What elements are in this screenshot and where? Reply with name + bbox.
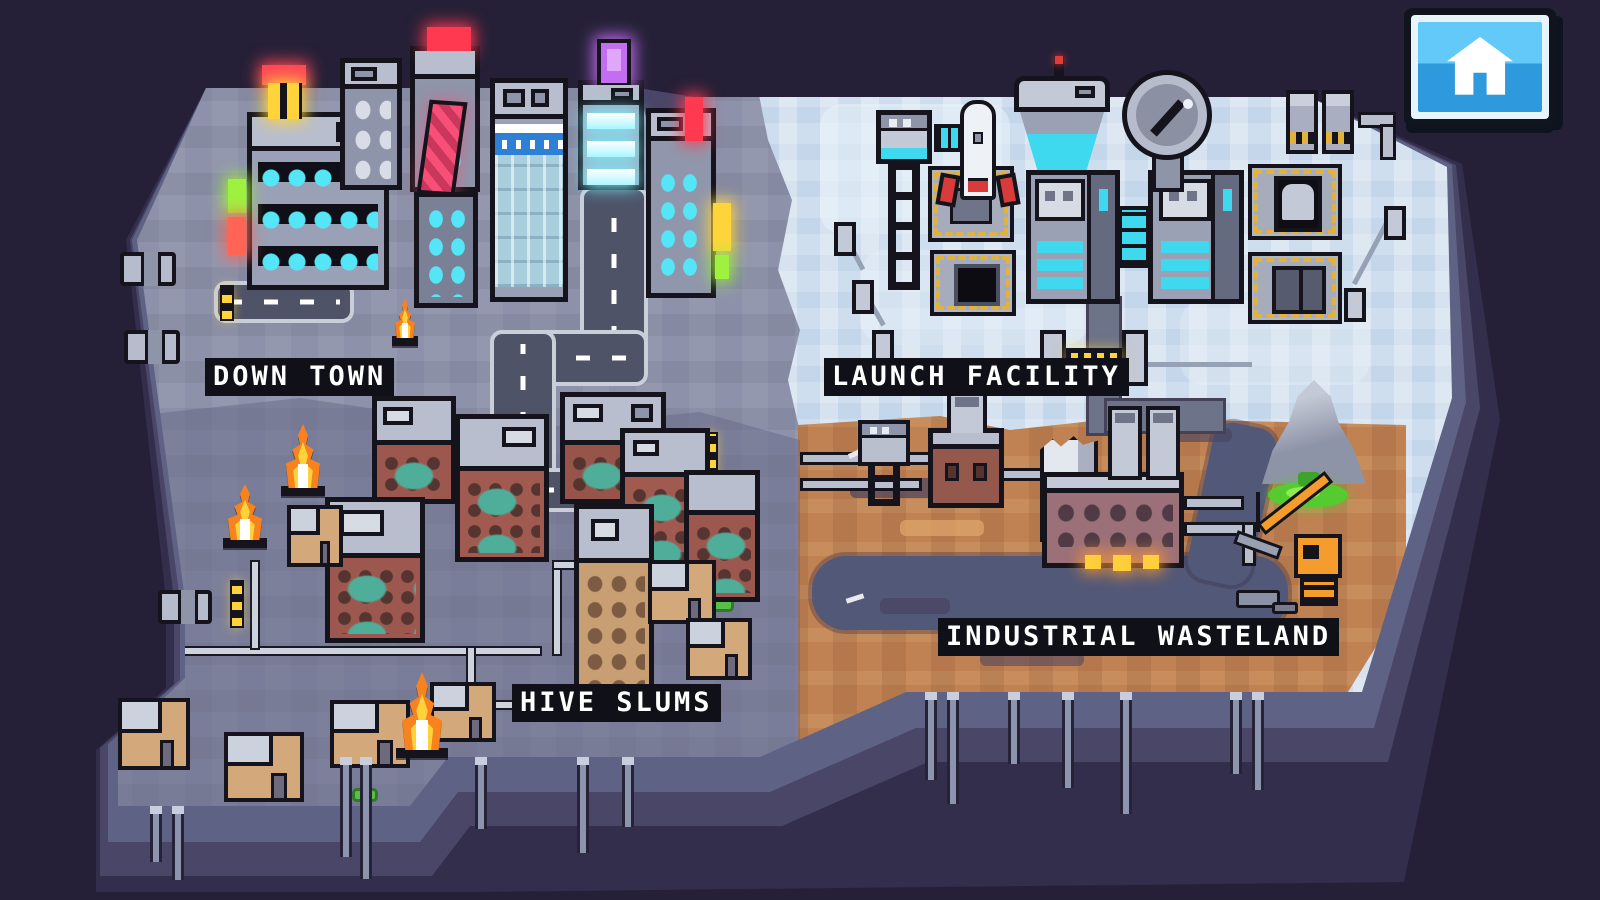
- cliff-pipe: [475, 757, 487, 829]
- cliff-pipe: [622, 757, 634, 827]
- red-neon-sign: [685, 97, 703, 141]
- hazard-barrier: [220, 285, 234, 321]
- crane: [1230, 470, 1360, 610]
- smelting-factory: [1042, 472, 1184, 568]
- blue-sign-band: [495, 133, 563, 155]
- dome: [1282, 184, 1314, 220]
- edge-pipe-clamp: [124, 330, 180, 364]
- shanty-hut: [648, 560, 716, 624]
- tower-white-strip: [495, 124, 563, 133]
- home-button[interactable]: [1404, 8, 1556, 126]
- crane-cab: [1294, 534, 1342, 578]
- fallen-beam: [1233, 530, 1283, 560]
- pink-banner: [416, 100, 467, 197]
- home-button-face: [1418, 22, 1542, 112]
- cyan-window-strip: [1037, 241, 1083, 253]
- furnace-glow: [1085, 555, 1101, 569]
- slum-pipe: [150, 646, 542, 656]
- crane-boom: [1257, 471, 1333, 535]
- label-launch-facility[interactable]: LAUNCH FACILITY: [824, 358, 1129, 396]
- open-missile-silo: [930, 250, 1016, 316]
- radar-dish: [1122, 70, 1214, 192]
- smokestack: [1146, 406, 1180, 480]
- skyscraper-3: [410, 46, 480, 192]
- rocket-fin-left: [935, 173, 960, 208]
- label-down-town[interactable]: DOWN TOWN: [205, 358, 394, 396]
- rocket: [936, 100, 1020, 212]
- neon-tower: [578, 80, 644, 190]
- cyan-band: [587, 169, 635, 185]
- cyan-band: [587, 141, 635, 157]
- label-hive-slums[interactable]: HIVE SLUMS: [512, 684, 721, 722]
- green-neon-sign: [228, 179, 246, 213]
- slum-pipe: [250, 560, 260, 650]
- machinery-pad-dome: [1248, 164, 1342, 240]
- boiler-house: [928, 428, 1004, 508]
- shanty-hut: [287, 505, 343, 567]
- cliff-pipe: [1120, 692, 1132, 814]
- red-neon-sign: [228, 217, 246, 255]
- green-neon-sign: [715, 255, 729, 279]
- cliff-pipe: [172, 806, 184, 880]
- glass-tower: [490, 78, 568, 302]
- cliff-pipe: [360, 757, 372, 879]
- factory-windows: [1053, 499, 1173, 547]
- world-map: DOWN TOWN LAUNCH FACILITY HIVE SLUMS IND…: [0, 0, 1600, 900]
- fence-line: [1148, 362, 1252, 367]
- tower-legs: [888, 164, 920, 290]
- skyscraper-2: [340, 58, 402, 190]
- slum-pipe: [552, 560, 562, 656]
- dirt-patch: [900, 520, 984, 536]
- furnace-glow: [1113, 555, 1131, 571]
- cliff-pipe: [1062, 692, 1074, 788]
- edge-pipe-clamp: [120, 252, 176, 286]
- cyan-window-strip: [1037, 259, 1083, 271]
- fire: [394, 298, 416, 338]
- cyan-window-strip: [1161, 277, 1209, 289]
- window-grid: [425, 205, 467, 297]
- brick-windows: [464, 479, 540, 553]
- brick-windows: [334, 566, 416, 634]
- label-industrial-wasteland[interactable]: INDUSTRIAL WASTELAND: [938, 618, 1339, 656]
- cliff-pipe: [947, 692, 959, 804]
- windows: [583, 571, 645, 691]
- cyan-window-strip: [1161, 241, 1209, 253]
- edge-pipe-clamp: [158, 590, 212, 624]
- edge-pipe: [1380, 124, 1396, 160]
- cliff-pipe: [577, 757, 589, 853]
- fence-post: [1344, 288, 1366, 322]
- vent-stack: [1322, 90, 1354, 154]
- shanty-hut: [118, 698, 190, 770]
- red-billboard: [427, 27, 471, 53]
- fire: [284, 424, 322, 488]
- vent-stack: [1286, 90, 1318, 154]
- rocket-body: [960, 100, 996, 200]
- shanty-hut: [224, 732, 304, 802]
- skyscraper-5: [646, 108, 716, 298]
- fence-post: [834, 222, 856, 256]
- research-lab-1: [1026, 170, 1120, 304]
- facility-water-tower: [876, 110, 932, 290]
- window-grid: [351, 95, 391, 179]
- cliff-pipe: [1008, 692, 1020, 764]
- cyan-window-strip: [1037, 277, 1083, 289]
- glass-facade: [495, 155, 563, 287]
- rubble: [1272, 602, 1298, 614]
- brick-windows: [381, 453, 447, 495]
- cliff-pipe: [1230, 692, 1242, 774]
- furnace-glow: [1143, 555, 1159, 569]
- crane-base: [1300, 578, 1338, 606]
- cyan-band: [587, 113, 635, 129]
- cliff-pipe: [925, 692, 937, 780]
- yellow-neon-stacks: [268, 83, 302, 119]
- purple-neon-sign: [597, 39, 631, 87]
- cliff-pipe: [340, 757, 352, 857]
- yellow-neon-sign: [713, 203, 731, 251]
- home-icon: [1447, 37, 1513, 95]
- cyan-window-strip: [1161, 259, 1209, 271]
- tenement: [455, 414, 549, 562]
- lab-connector: [1118, 206, 1150, 268]
- wasteland-water-tower: [858, 420, 910, 506]
- fire: [226, 484, 264, 540]
- tenement-tall: [574, 504, 654, 700]
- tar-patch: [880, 598, 950, 614]
- cliff-pipe: [1252, 692, 1264, 790]
- fire: [400, 672, 444, 750]
- cliff-pipe: [150, 806, 162, 862]
- road-main-north: [580, 186, 648, 354]
- shanty-hut: [686, 618, 752, 680]
- crane-cable: [1256, 492, 1260, 532]
- skyscraper-4: [414, 192, 478, 308]
- smokestack: [1108, 406, 1142, 480]
- window-grid: [657, 169, 705, 285]
- tenement: [372, 396, 456, 504]
- fence-post: [852, 280, 874, 314]
- red-neon-sign: [262, 65, 306, 85]
- hazard-barrier: [230, 580, 244, 628]
- fence-post: [1384, 206, 1406, 240]
- machinery-pad-hatch: [1248, 252, 1342, 324]
